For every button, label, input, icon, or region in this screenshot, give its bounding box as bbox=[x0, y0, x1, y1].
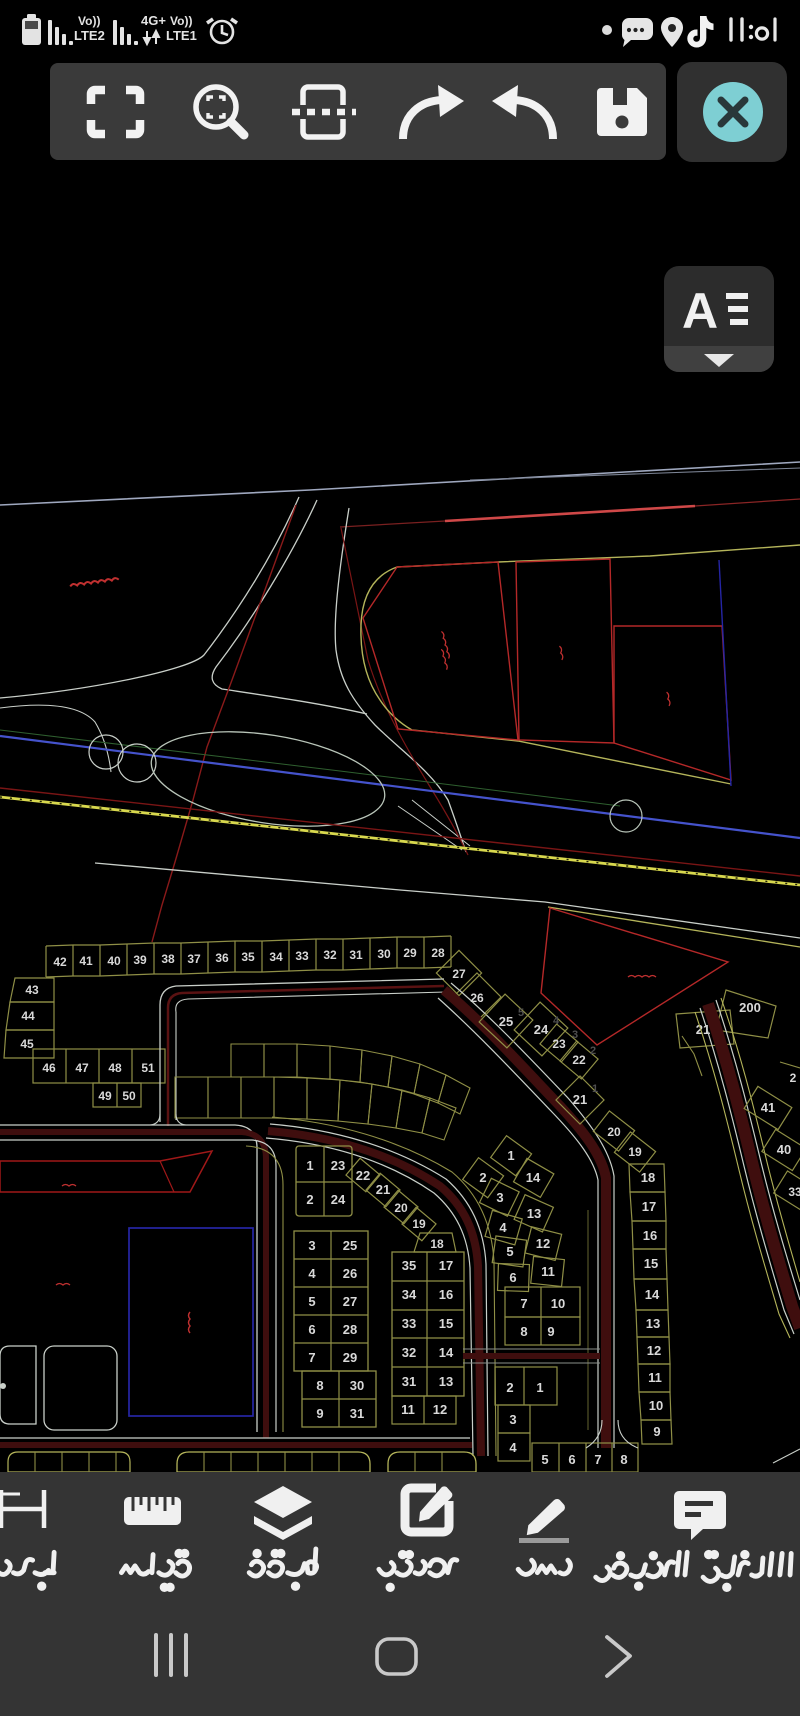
svg-text:30: 30 bbox=[377, 947, 391, 961]
svg-text:27: 27 bbox=[452, 967, 466, 981]
svg-text:5: 5 bbox=[506, 1244, 513, 1259]
svg-text:48: 48 bbox=[108, 1061, 122, 1075]
svg-text:31: 31 bbox=[402, 1374, 416, 1389]
svg-text:39: 39 bbox=[133, 953, 147, 967]
svg-text:33: 33 bbox=[295, 949, 309, 963]
svg-text:4: 4 bbox=[553, 1015, 560, 1027]
svg-text:13: 13 bbox=[646, 1316, 660, 1331]
svg-text:9: 9 bbox=[547, 1324, 554, 1339]
svg-text:7: 7 bbox=[308, 1350, 315, 1365]
svg-text:2: 2 bbox=[790, 1071, 797, 1085]
svg-text:34: 34 bbox=[269, 950, 283, 964]
svg-text:3: 3 bbox=[308, 1238, 315, 1253]
svg-text:38: 38 bbox=[161, 952, 175, 966]
svg-text:5: 5 bbox=[541, 1452, 548, 1467]
svg-text:3: 3 bbox=[572, 1029, 578, 1041]
svg-text:16: 16 bbox=[643, 1228, 657, 1243]
svg-text:17: 17 bbox=[439, 1258, 453, 1273]
svg-text:200: 200 bbox=[739, 1000, 761, 1015]
svg-text:40: 40 bbox=[777, 1142, 791, 1157]
svg-text:16: 16 bbox=[439, 1287, 453, 1302]
svg-text:7: 7 bbox=[520, 1296, 527, 1311]
svg-text:51: 51 bbox=[141, 1061, 155, 1075]
svg-text:4: 4 bbox=[499, 1220, 507, 1235]
svg-text:21: 21 bbox=[573, 1092, 587, 1107]
svg-text:12: 12 bbox=[433, 1402, 447, 1417]
svg-text:43: 43 bbox=[25, 983, 39, 997]
svg-text:40: 40 bbox=[107, 954, 121, 968]
svg-text:6: 6 bbox=[509, 1270, 516, 1285]
svg-text:17: 17 bbox=[642, 1199, 656, 1214]
svg-text:24: 24 bbox=[331, 1192, 346, 1207]
svg-text:47: 47 bbox=[75, 1061, 89, 1075]
svg-text:A: A bbox=[682, 283, 718, 339]
svg-text:29: 29 bbox=[403, 946, 417, 960]
svg-text:50: 50 bbox=[122, 1089, 136, 1103]
svg-text:31: 31 bbox=[350, 1406, 364, 1421]
svg-text:44: 44 bbox=[21, 1009, 35, 1023]
svg-text:Vo)): Vo)) bbox=[170, 14, 192, 28]
svg-text:15: 15 bbox=[644, 1256, 658, 1271]
svg-text:3: 3 bbox=[509, 1412, 516, 1427]
svg-text:2: 2 bbox=[306, 1192, 313, 1207]
svg-text:22: 22 bbox=[572, 1053, 586, 1067]
svg-text:45: 45 bbox=[20, 1037, 34, 1051]
svg-text:6: 6 bbox=[308, 1322, 315, 1337]
svg-text:28: 28 bbox=[343, 1322, 357, 1337]
svg-text:32: 32 bbox=[402, 1345, 416, 1360]
svg-text:29: 29 bbox=[343, 1350, 357, 1365]
svg-text:1: 1 bbox=[536, 1380, 543, 1395]
svg-text:12: 12 bbox=[536, 1236, 550, 1251]
svg-text:23: 23 bbox=[552, 1037, 566, 1051]
svg-text:11: 11 bbox=[648, 1370, 662, 1385]
svg-text:37: 37 bbox=[187, 952, 201, 966]
svg-text:33: 33 bbox=[402, 1316, 416, 1331]
svg-text:9: 9 bbox=[316, 1406, 323, 1421]
svg-text:5: 5 bbox=[308, 1294, 315, 1309]
svg-text:41: 41 bbox=[761, 1100, 775, 1115]
svg-text:2: 2 bbox=[479, 1170, 486, 1185]
svg-text:35: 35 bbox=[402, 1258, 416, 1273]
svg-text:12: 12 bbox=[647, 1343, 661, 1358]
svg-text:9: 9 bbox=[653, 1424, 660, 1439]
svg-text:7: 7 bbox=[594, 1452, 601, 1467]
svg-text:32: 32 bbox=[323, 948, 337, 962]
svg-text:26: 26 bbox=[470, 991, 484, 1005]
svg-text:3: 3 bbox=[496, 1190, 503, 1205]
svg-text:18: 18 bbox=[641, 1170, 655, 1185]
svg-text:11: 11 bbox=[541, 1264, 555, 1279]
svg-text:25: 25 bbox=[343, 1238, 357, 1253]
svg-text:6: 6 bbox=[568, 1452, 575, 1467]
svg-text:21: 21 bbox=[376, 1182, 390, 1197]
svg-text:2: 2 bbox=[590, 1045, 596, 1057]
svg-text:34: 34 bbox=[402, 1287, 417, 1302]
svg-text:20: 20 bbox=[607, 1125, 621, 1139]
svg-text:22: 22 bbox=[356, 1168, 370, 1183]
svg-text:28: 28 bbox=[431, 946, 445, 960]
svg-text:1: 1 bbox=[306, 1158, 313, 1173]
svg-text:10: 10 bbox=[649, 1398, 663, 1413]
svg-text:18: 18 bbox=[430, 1237, 444, 1251]
svg-text:46: 46 bbox=[42, 1061, 56, 1075]
svg-text:13: 13 bbox=[439, 1374, 453, 1389]
svg-text:8: 8 bbox=[520, 1324, 527, 1339]
svg-text:26: 26 bbox=[343, 1266, 357, 1281]
svg-text:23: 23 bbox=[331, 1158, 345, 1173]
svg-text:13: 13 bbox=[527, 1206, 541, 1221]
svg-text:31: 31 bbox=[349, 948, 363, 962]
svg-text:5: 5 bbox=[518, 1007, 524, 1019]
svg-text:33: 33 bbox=[788, 1185, 800, 1199]
svg-text:41: 41 bbox=[79, 954, 93, 968]
svg-text:30: 30 bbox=[350, 1378, 364, 1393]
svg-text:14: 14 bbox=[439, 1345, 454, 1360]
svg-text:2: 2 bbox=[506, 1380, 513, 1395]
svg-text:14: 14 bbox=[526, 1170, 541, 1185]
svg-text:27: 27 bbox=[343, 1294, 357, 1309]
svg-text:19: 19 bbox=[412, 1217, 426, 1231]
svg-text:1: 1 bbox=[592, 1083, 598, 1095]
svg-text:10: 10 bbox=[551, 1296, 565, 1311]
svg-text:LTE1: LTE1 bbox=[166, 28, 197, 43]
svg-text:1: 1 bbox=[507, 1148, 514, 1163]
svg-text:19: 19 bbox=[628, 1145, 642, 1159]
svg-text:36: 36 bbox=[215, 951, 229, 965]
svg-text:35: 35 bbox=[241, 950, 255, 964]
svg-text:20: 20 bbox=[394, 1201, 408, 1215]
svg-text:LTE2: LTE2 bbox=[74, 28, 105, 43]
svg-text:Vo)): Vo)) bbox=[78, 14, 100, 28]
svg-text:4: 4 bbox=[509, 1440, 517, 1455]
svg-text:4G+: 4G+ bbox=[141, 13, 166, 28]
svg-text:49: 49 bbox=[98, 1089, 112, 1103]
svg-text:8: 8 bbox=[316, 1378, 323, 1393]
svg-text:24: 24 bbox=[534, 1022, 549, 1037]
svg-text:42: 42 bbox=[53, 955, 67, 969]
svg-text:15: 15 bbox=[439, 1316, 453, 1331]
svg-text:8: 8 bbox=[620, 1452, 627, 1467]
svg-text:11: 11 bbox=[401, 1402, 415, 1417]
svg-text:14: 14 bbox=[645, 1287, 660, 1302]
svg-text:4: 4 bbox=[308, 1266, 316, 1281]
svg-text:25: 25 bbox=[499, 1014, 513, 1029]
